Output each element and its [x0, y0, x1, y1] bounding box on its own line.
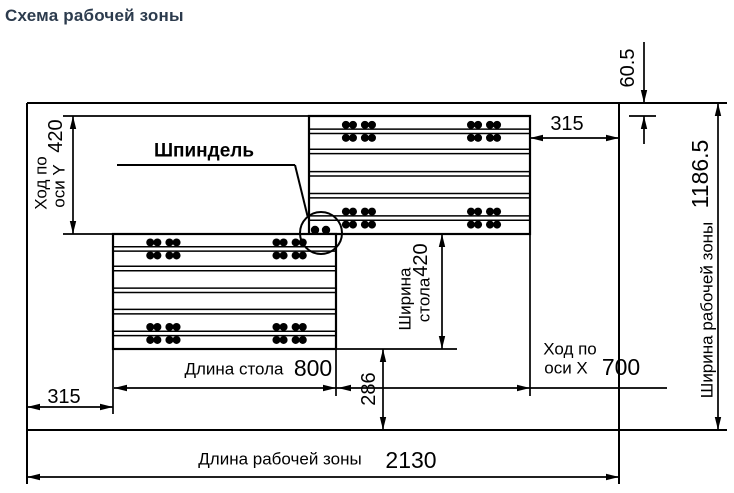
- upper-table-bolt-hole: [368, 121, 376, 129]
- upper-table-bolt-hole: [474, 221, 482, 229]
- lower-table-bolt-hole: [280, 323, 288, 331]
- dimension-arrowhead: [100, 404, 113, 410]
- dimension-arrowhead: [715, 103, 721, 116]
- upper-table-bolt-hole: [361, 121, 369, 129]
- y-travel-label-line1: Ход по: [32, 156, 51, 210]
- lower-table-bolt-hole: [165, 323, 173, 331]
- upper-table-bolt-hole: [474, 134, 482, 142]
- lower-table-bolt-hole: [173, 323, 181, 331]
- dimension-arrowhead: [70, 116, 76, 129]
- spindle-dot: [311, 226, 319, 234]
- upper-table-bolt-hole: [493, 208, 501, 216]
- dimension-arrowhead: [606, 474, 619, 480]
- lower-table-bolt-hole: [146, 251, 154, 259]
- lower-table-bolt-hole: [280, 238, 288, 246]
- upper-table-bolt-hole: [342, 121, 350, 129]
- work-zone-length-label: Длина рабочей зоны: [198, 450, 361, 469]
- upper-table-bolt-hole: [493, 121, 501, 129]
- lower-table-bolt-hole: [153, 238, 161, 246]
- dimension-arrowhead: [641, 90, 647, 103]
- lower-table-bolt-hole: [146, 323, 154, 331]
- dimension-arrowhead: [27, 404, 40, 410]
- lower-table-bolt-hole: [173, 238, 181, 246]
- lower-table-bolt-hole: [173, 336, 181, 344]
- upper-table-bolt-hole: [486, 208, 494, 216]
- lower-table-bolt-hole: [173, 251, 181, 259]
- x-travel-value: 700: [602, 354, 640, 380]
- lower-table-bolt-hole: [272, 336, 280, 344]
- top-edge-offset-value: 60.5: [617, 49, 639, 88]
- upper-table-bolt-hole: [474, 208, 482, 216]
- upper-table-bolt-hole: [349, 221, 357, 229]
- upper-table-bolt-hole: [361, 134, 369, 142]
- right-table-offset-value: 315: [550, 113, 583, 135]
- upper-table-bolt-hole: [342, 134, 350, 142]
- lower-table-bolt-hole: [165, 238, 173, 246]
- dimension-arrowhead: [27, 474, 40, 480]
- lower-table-bolt-hole: [153, 251, 161, 259]
- upper-table-bolt-hole: [349, 134, 357, 142]
- upper-table-bolt-hole: [467, 134, 475, 142]
- table-length-value: 800: [294, 355, 332, 381]
- upper-table-bolt-hole: [342, 221, 350, 229]
- lower-table-bolt-hole: [272, 251, 280, 259]
- y-travel-label-line2: оси Y: [50, 164, 69, 208]
- dimension-arrowhead: [380, 417, 386, 430]
- upper-table-bolt-hole: [467, 208, 475, 216]
- y-travel-value: 420: [45, 119, 67, 152]
- upper-table-bolt-hole: [368, 208, 376, 216]
- dimension-arrowhead: [439, 336, 445, 349]
- lower-table-bolt-hole: [153, 323, 161, 331]
- upper-table-bolt-hole: [467, 121, 475, 129]
- table-width-label-line2: стола: [415, 277, 434, 322]
- work-zone-diagram: Шпиндель Ход по оси Y 420 60.5 315 Ширин…: [0, 0, 734, 493]
- work-zone-length-value: 2130: [385, 447, 436, 473]
- dimension-arrowhead: [380, 349, 386, 362]
- diagram-geometry: [27, 42, 727, 484]
- work-zone-width-label: Ширина рабочей зоны: [698, 222, 717, 399]
- lower-table-bolt-hole: [165, 251, 173, 259]
- spindle-label: Шпиндель: [154, 141, 254, 162]
- upper-table-bolt-hole: [493, 221, 501, 229]
- upper-table-bolt-hole: [349, 121, 357, 129]
- dimension-arrowhead: [323, 385, 336, 391]
- lower-table-bolt-hole: [292, 323, 300, 331]
- upper-table-bolt-hole: [486, 121, 494, 129]
- lower-table-bolt-hole: [272, 238, 280, 246]
- spindle-dot: [322, 226, 330, 234]
- spindle-leader-line: [295, 165, 308, 218]
- upper-table-bolt-hole: [467, 221, 475, 229]
- x-travel-label-line2: оси X: [544, 359, 588, 378]
- table-width-value: 420: [410, 243, 432, 276]
- lower-table-bolt-hole: [153, 336, 161, 344]
- lower-table-bolt-hole: [292, 251, 300, 259]
- lower-table-bolt-hole: [146, 336, 154, 344]
- upper-table-bolt-hole: [349, 208, 357, 216]
- upper-table-bolt-hole: [361, 221, 369, 229]
- dimension-arrowhead: [530, 135, 543, 141]
- lower-table-bolt-hole: [146, 238, 154, 246]
- upper-table-bolt-hole: [486, 221, 494, 229]
- lower-table-bolt-hole: [292, 336, 300, 344]
- dimension-arrowhead: [715, 417, 721, 430]
- upper-table-bolt-hole: [493, 134, 501, 142]
- lower-table-bolt-hole: [280, 251, 288, 259]
- table-bottom-offset-value: 286: [358, 372, 380, 405]
- upper-table-bolt-hole: [474, 121, 482, 129]
- upper-table-bolt-hole: [342, 208, 350, 216]
- table-length-label: Длина стола: [184, 360, 284, 379]
- dimension-arrowhead: [517, 385, 530, 391]
- schematic-page: Схема рабочей зоны Шпиндель Ход по оси Y…: [0, 0, 734, 493]
- left-table-offset-value: 315: [47, 386, 80, 408]
- dimension-arrowhead: [338, 385, 351, 391]
- dimension-arrowhead: [641, 116, 647, 129]
- upper-table-bolt-hole: [368, 221, 376, 229]
- upper-table-bolt-hole: [361, 208, 369, 216]
- lower-table-bolt-hole: [165, 336, 173, 344]
- dimension-arrowhead: [114, 385, 127, 391]
- upper-table-bolt-hole: [486, 134, 494, 142]
- upper-table-bolt-hole: [368, 134, 376, 142]
- dimension-arrowhead: [606, 135, 619, 141]
- work-zone-width-value: 1186.5: [687, 140, 713, 209]
- lower-table-bolt-hole: [299, 323, 307, 331]
- dimension-arrowhead: [439, 234, 445, 247]
- lower-table-bolt-hole: [292, 238, 300, 246]
- x-travel-label-line1: Ход по: [543, 340, 597, 359]
- lower-table-bolt-hole: [280, 336, 288, 344]
- lower-table-bolt-hole: [299, 336, 307, 344]
- lower-table-bolt-hole: [299, 251, 307, 259]
- lower-table-bolt-hole: [272, 323, 280, 331]
- dimension-arrowhead: [70, 221, 76, 234]
